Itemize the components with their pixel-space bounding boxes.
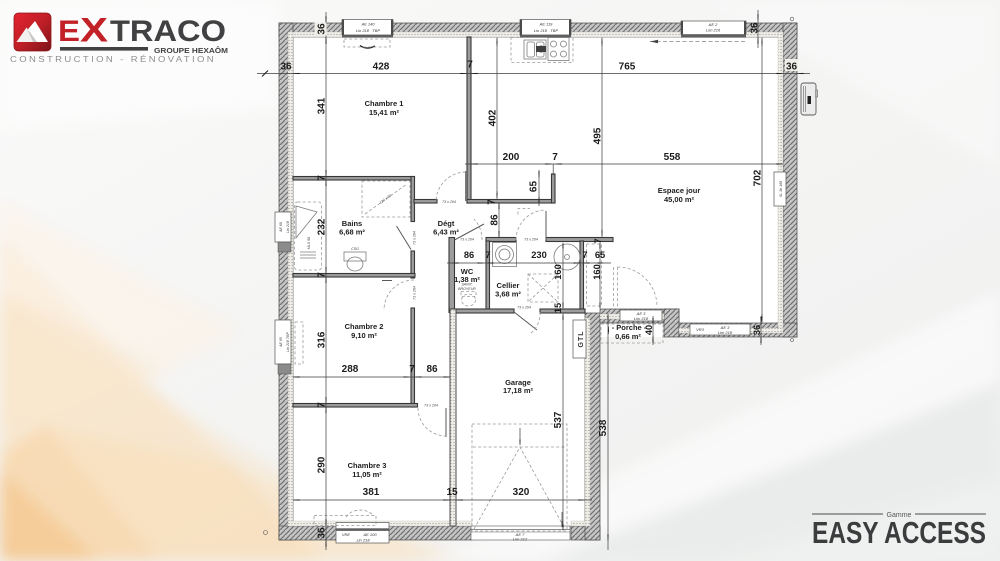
svg-text:232: 232 [317, 218, 328, 235]
svg-text:7: 7 [317, 175, 328, 181]
svg-text:- Porche -: - Porche - [612, 323, 647, 332]
svg-text:BROYEUR: BROYEUR [458, 287, 476, 291]
svg-text:36: 36 [317, 23, 328, 35]
svg-text:VR3: VR3 [696, 327, 705, 332]
svg-text:VRE: VRE [342, 532, 351, 537]
svg-text:EASY ACCESS: EASY ACCESS [812, 515, 986, 550]
svg-text:7: 7 [552, 152, 558, 163]
svg-text:36: 36 [317, 527, 328, 539]
svg-text:537: 537 [553, 411, 564, 428]
svg-text:288: 288 [342, 364, 359, 375]
svg-text:538: 538 [598, 419, 609, 436]
svg-text:Lim 218: Lim 218 [718, 330, 733, 335]
svg-text:AE 2: AE 2 [708, 22, 718, 27]
svg-text:0,66 m²: 0,66 m² [615, 332, 641, 341]
svg-text:Chambre 3: Chambre 3 [348, 461, 387, 470]
svg-text:E: E [58, 15, 80, 48]
svg-text:AE 95: AE 95 [279, 337, 283, 348]
svg-text:SL 3h 168: SL 3h 168 [779, 181, 783, 197]
svg-text:402: 402 [488, 109, 499, 126]
svg-text:AE 100: AE 100 [362, 532, 377, 537]
svg-text:15: 15 [553, 303, 563, 313]
svg-text:7: 7 [582, 250, 587, 260]
svg-text:Espace jour: Espace jour [658, 186, 701, 195]
svg-text:495: 495 [593, 127, 604, 144]
svg-text:AE 60: AE 60 [279, 222, 283, 233]
svg-text:558: 558 [664, 152, 681, 163]
svg-text:36: 36 [752, 325, 762, 335]
svg-text:86: 86 [490, 214, 501, 226]
svg-text:73 x 204: 73 x 204 [524, 238, 538, 242]
svg-text:Lin 218 TBP: Lin 218 TBP [534, 28, 559, 33]
svg-text:36: 36 [280, 62, 292, 73]
svg-text:Chambre 1: Chambre 1 [365, 99, 404, 108]
svg-text:Chambre 2: Chambre 2 [345, 322, 384, 331]
svg-text:36: 36 [786, 62, 798, 73]
svg-text:45,00 m²: 45,00 m² [664, 195, 695, 204]
svg-text:Lon 216: Lon 216 [706, 28, 721, 33]
svg-text:7: 7 [485, 250, 490, 260]
svg-text:9,10 m²: 9,10 m² [351, 331, 377, 340]
svg-text:7: 7 [317, 272, 328, 278]
svg-text:7: 7 [593, 238, 603, 243]
svg-text:CONSTRUCTION - RÉNOVATION: CONSTRUCTION - RÉNOVATION [10, 55, 216, 64]
svg-text:73 x 204: 73 x 204 [460, 238, 474, 242]
svg-text:6,68 m²: 6,68 m² [339, 228, 365, 237]
svg-text:428: 428 [373, 62, 390, 73]
svg-text:160: 160 [553, 264, 563, 280]
svg-text:316: 316 [317, 331, 328, 348]
svg-text:320: 320 [513, 487, 530, 498]
svg-text:765: 765 [619, 62, 636, 73]
svg-text:7: 7 [487, 199, 498, 205]
svg-text:73 x 204: 73 x 204 [424, 404, 438, 408]
svg-text:Lim 218: Lim 218 [634, 316, 649, 321]
svg-text:Lim 212: Lim 212 [513, 537, 528, 542]
svg-text:6,43 m²: 6,43 m² [433, 228, 459, 237]
svg-text:65: 65 [529, 181, 540, 193]
svg-text:702: 702 [753, 169, 764, 186]
svg-text:230: 230 [531, 250, 547, 260]
svg-text:73 x 204: 73 x 204 [442, 200, 456, 204]
svg-text:Lin 218: Lin 218 [356, 538, 370, 543]
svg-text:160: 160 [592, 264, 602, 280]
svg-text:86: 86 [426, 364, 438, 375]
svg-text:36: 36 [750, 22, 761, 34]
svg-text:73 x 204: 73 x 204 [413, 231, 417, 245]
svg-text:TRACO: TRACO [110, 15, 226, 48]
svg-text:X: X [80, 12, 108, 50]
svg-text:15,41 m²: 15,41 m² [369, 108, 400, 117]
svg-text:341: 341 [317, 97, 328, 114]
svg-text:15: 15 [446, 487, 458, 498]
svg-text:1,38 m²: 1,38 m² [454, 275, 480, 284]
svg-text:GTL: GTL [578, 331, 585, 348]
svg-text:86: 86 [464, 250, 474, 260]
svg-text:AE 140: AE 140 [360, 22, 375, 27]
svg-text:7: 7 [409, 364, 415, 375]
svg-text:Lin 218 TBP: Lin 218 TBP [356, 28, 381, 33]
svg-text:73 x 204: 73 x 204 [413, 286, 417, 300]
svg-text:MLS 90: MLS 90 [307, 237, 311, 249]
svg-text:73 x 204: 73 x 204 [517, 306, 531, 310]
svg-text:3,68 m²: 3,68 m² [495, 290, 521, 299]
svg-text:7: 7 [317, 402, 328, 408]
svg-text:40: 40 [644, 325, 654, 335]
svg-text:Lin 218 TBP: Lin 218 TBP [286, 332, 290, 352]
svg-text:290: 290 [317, 456, 328, 473]
svg-text:Lin 218: Lin 218 [286, 221, 290, 233]
svg-text:GROUPE HEXAÔM: GROUPE HEXAÔM [154, 46, 228, 55]
svg-text:AE 119: AE 119 [539, 22, 554, 27]
svg-text:200: 200 [503, 152, 520, 163]
svg-text:7: 7 [467, 60, 473, 71]
svg-text:CSG: CSG [351, 247, 359, 251]
svg-text:11,05 m²: 11,05 m² [352, 470, 382, 479]
svg-text:381: 381 [363, 487, 380, 498]
svg-text:17,18 m²: 17,18 m² [503, 386, 534, 395]
